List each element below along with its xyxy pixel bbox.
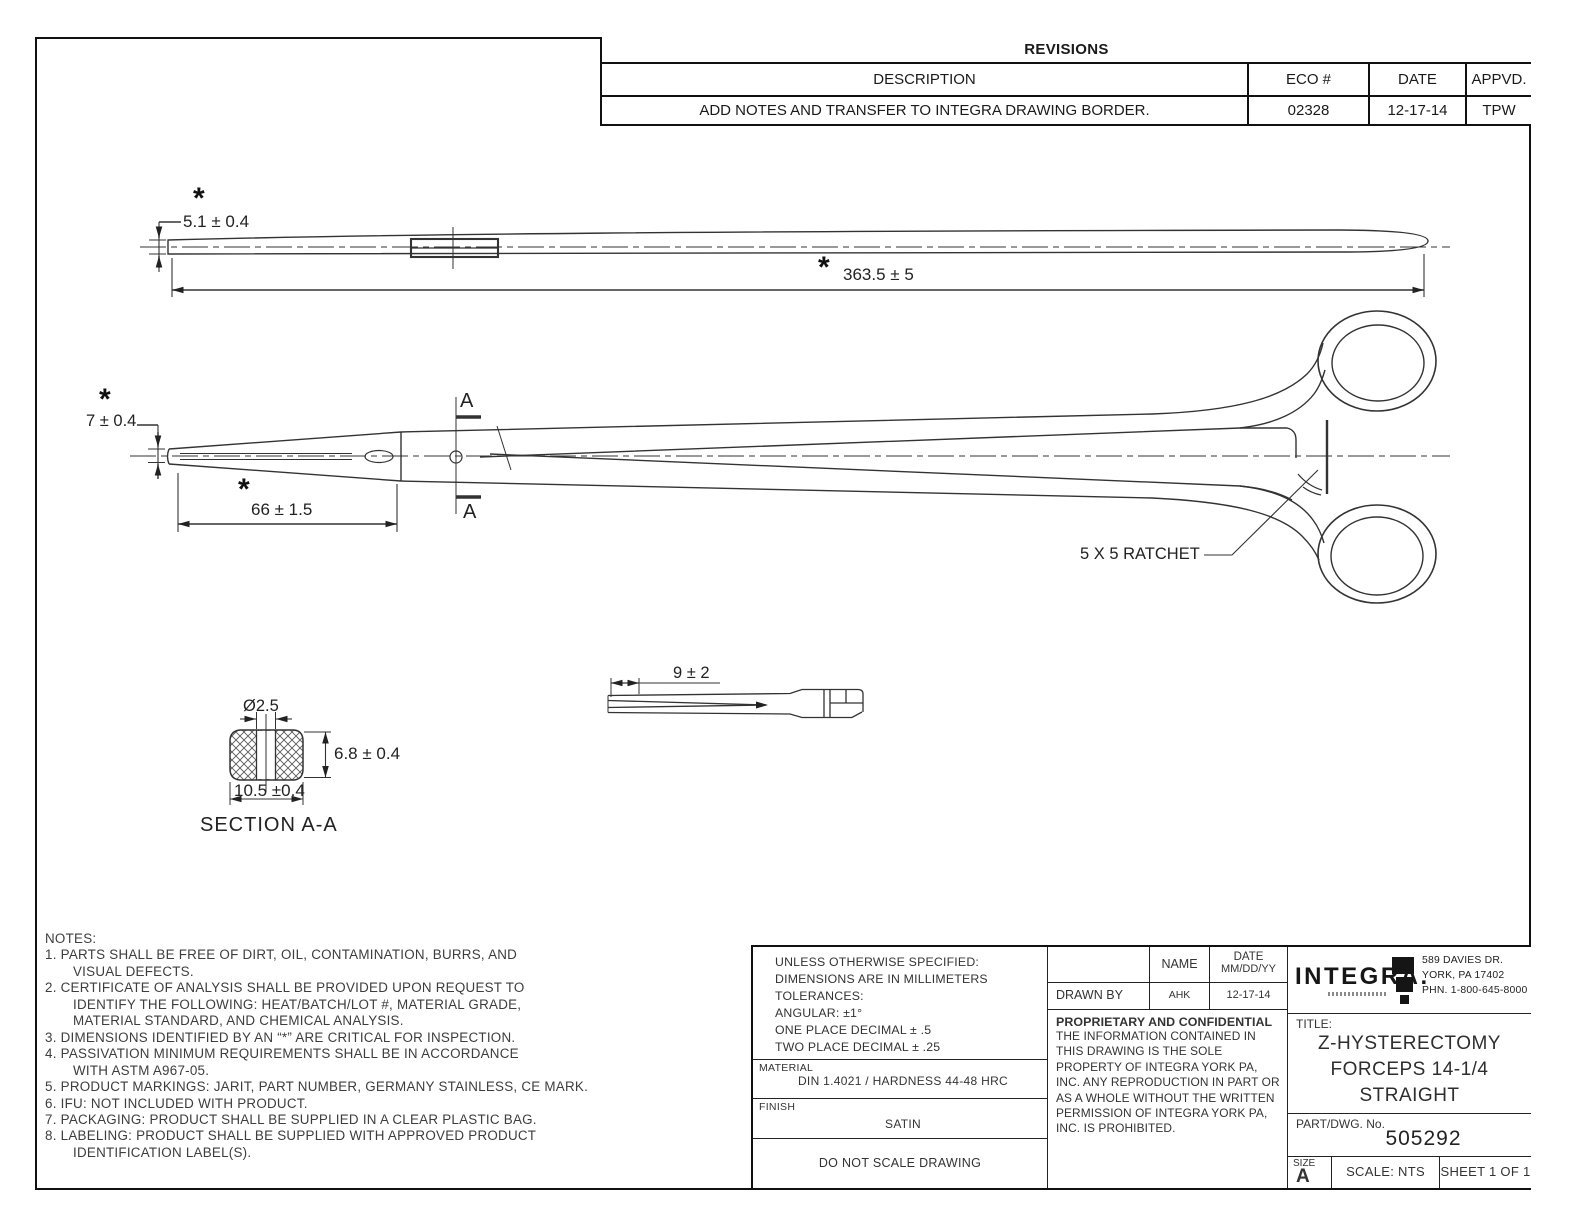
note-line: NOTES: — [45, 931, 605, 947]
critical-marker-jaw-length: * — [238, 475, 250, 505]
tolerance-line: DIMENSIONS ARE IN MILLIMETERS — [775, 971, 1047, 988]
section-title: SECTION A-A — [200, 814, 338, 837]
note-line: IDENTIFICATION LABEL(S). — [45, 1145, 605, 1161]
tolerance-line: TWO PLACE DECIMAL ± .25 — [775, 1039, 1047, 1056]
note-line: 2. CERTIFICATE OF ANALYSIS SHALL BE PROV… — [45, 980, 605, 996]
tolerances-cell: UNLESS OTHERWISE SPECIFIED: DIMENSIONS A… — [753, 947, 1047, 1059]
material-label: MATERIAL — [759, 1062, 1047, 1074]
section-width-dim: 10.5 ±0.4 — [234, 781, 305, 801]
do-not-scale-cell: DO NOT SCALE DRAWING — [753, 1138, 1047, 1188]
drawn-by-label-cell: DRAWN BY — [1047, 983, 1149, 1010]
tolerance-line: ONE PLACE DECIMAL ± .5 — [775, 1022, 1047, 1039]
section-hole-dim: Ø2.5 — [243, 697, 279, 716]
top-view-height-dim: 5.1 ± 0.4 — [183, 212, 249, 232]
notes-block: NOTES: 1. PARTS SHALL BE FREE OF DIRT, O… — [45, 931, 605, 1161]
address-line: 589 DAVIES DR. — [1422, 953, 1527, 968]
drawing-title-line: Z-HYSTERECTOMY — [1288, 1031, 1531, 1057]
title-cell: TITLE: Z-HYSTERECTOMY FORCEPS 14-1/4 STR… — [1287, 1014, 1531, 1114]
tolerance-line: TOLERANCES: — [775, 988, 1047, 1005]
tip-detail-serration-dim: 9 ± 2 — [673, 664, 710, 683]
do-not-scale-text: DO NOT SCALE DRAWING — [753, 1139, 1047, 1187]
address-line: YORK, PA 17402 — [1422, 968, 1527, 983]
sign-header-blank-cell — [1047, 947, 1149, 983]
note-line: IDENTIFY THE FOLLOWING: HEAT/BATCH/LOT #… — [45, 997, 605, 1013]
drawn-by-date-cell: 12-17-14 — [1209, 983, 1287, 1010]
side-view-jaw-length-dim: 66 ± 1.5 — [251, 500, 312, 520]
ratchet-label: 5 X 5 RATCHET — [1080, 545, 1200, 564]
drawn-by-name-cell: AHK — [1149, 983, 1209, 1010]
drawing-title-line: STRAIGHT — [1288, 1083, 1531, 1109]
side-view-drawing — [130, 311, 1450, 603]
note-line: 3. DIMENSIONS IDENTIFIED BY AN “*” ARE C… — [45, 1030, 605, 1046]
sheet-cell: SHEET 1 OF 1 — [1439, 1157, 1531, 1188]
name-header-cell: NAME — [1149, 947, 1209, 983]
note-line: 4. PASSIVATION MINIMUM REQUIREMENTS SHAL… — [45, 1046, 605, 1062]
finish-cell: FINISH SATIN — [753, 1098, 1047, 1138]
finish-label: FINISH — [759, 1101, 1047, 1113]
note-line: 7. PACKAGING: PRODUCT SHALL BE SUPPLIED … — [45, 1112, 605, 1128]
integra-logo-square-icon — [1400, 995, 1409, 1004]
tolerance-line: UNLESS OTHERWISE SPECIFIED: — [775, 954, 1047, 971]
critical-marker-tip-height: * — [99, 385, 111, 415]
address-line: PHN. 1-800-645-8000 — [1422, 983, 1527, 998]
proprietary-cell: PROPRIETARY AND CONFIDENTIAL THE INFORMA… — [1047, 1010, 1287, 1188]
size-cell: SIZE A — [1287, 1157, 1331, 1188]
section-letter-top: A — [460, 390, 473, 413]
note-line: MATERIAL STANDARD, AND CHEMICAL ANALYSIS… — [45, 1013, 605, 1029]
date-header-line2: MM/DD/YY — [1210, 963, 1287, 975]
finish-value: SATIN — [759, 1117, 1047, 1131]
note-line: 6. IFU: NOT INCLUDED WITH PRODUCT. — [45, 1096, 605, 1112]
tip-detail-drawing — [608, 678, 863, 718]
integra-logo-square-icon — [1392, 957, 1414, 974]
proprietary-title: PROPRIETARY AND CONFIDENTIAL — [1056, 1015, 1280, 1029]
integra-logo-tagline — [1328, 992, 1386, 996]
material-cell: MATERIAL DIN 1.4021 / HARDNESS 44-48 HRC — [753, 1059, 1047, 1098]
date-header-line1: DATE — [1210, 951, 1287, 963]
material-value: DIN 1.4021 / HARDNESS 44-48 HRC — [759, 1074, 1047, 1088]
note-line: 1. PARTS SHALL BE FREE OF DIRT, OIL, CON… — [45, 947, 605, 963]
note-line: 5. PRODUCT MARKINGS: JARIT, PART NUMBER,… — [45, 1079, 605, 1095]
company-cell: INTEGRA. 589 DAVIES DR. YORK, PA 17402 P… — [1287, 947, 1531, 1014]
title-label: TITLE: — [1288, 1017, 1531, 1031]
note-line: VISUAL DEFECTS. — [45, 964, 605, 980]
title-block: UNLESS OTHERWISE SPECIFIED: DIMENSIONS A… — [751, 945, 1531, 1188]
proprietary-body: THE INFORMATION CONTAINED IN THIS DRAWIN… — [1056, 1029, 1280, 1137]
section-height-dim: 6.8 ± 0.4 — [334, 744, 400, 764]
critical-marker-top-length: * — [818, 253, 830, 283]
part-number-cell: PART/DWG. No. 505292 — [1287, 1114, 1531, 1157]
critical-marker-top-height: * — [193, 184, 205, 214]
top-view-length-dim: 363.5 ± 5 — [843, 265, 914, 285]
side-view-tip-height-dim: 7 ± 0.4 — [86, 412, 136, 431]
scale-cell: SCALE: NTS — [1331, 1157, 1439, 1188]
company-address: 589 DAVIES DR. YORK, PA 17402 PHN. 1-800… — [1422, 953, 1527, 998]
integra-logo-square-icon — [1396, 977, 1413, 992]
drawing-sheet: REVISIONS DESCRIPTION ECO # DATE APPVD. … — [0, 0, 1584, 1224]
date-header-cell: DATE MM/DD/YY — [1209, 947, 1287, 983]
size-value: A — [1288, 1166, 1331, 1188]
tolerance-line: ANGULAR: ±1° — [775, 1005, 1047, 1022]
note-line: 8. LABELING: PRODUCT SHALL BE SUPPLIED W… — [45, 1128, 605, 1144]
drawing-title-line: FORCEPS 14-1/4 — [1288, 1057, 1531, 1083]
note-line: WITH ASTM A967-05. — [45, 1063, 605, 1079]
section-letter-bottom: A — [463, 501, 476, 524]
top-view-drawing — [140, 222, 1450, 297]
